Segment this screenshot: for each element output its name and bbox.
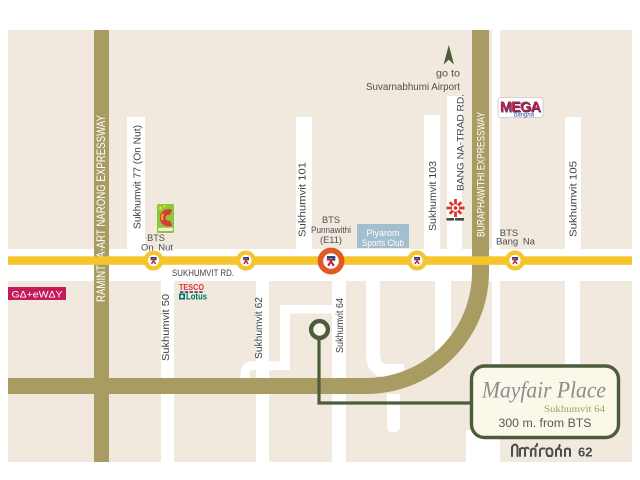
svg-text:62: 62 <box>578 445 592 460</box>
svg-text:(E11): (E11) <box>320 235 342 245</box>
svg-text:Bang Na: Bang Na <box>496 237 536 248</box>
svg-text:Sukhumvit 64: Sukhumvit 64 <box>544 404 606 414</box>
svg-text:300 m. from BTS: 300 m. from BTS <box>499 416 592 430</box>
svg-text:Piyarom: Piyarom <box>366 228 399 238</box>
svg-text:Sukhumvit 62: Sukhumvit 62 <box>254 297 265 359</box>
svg-text:Sports Club: Sports Club <box>362 238 404 248</box>
svg-text:SUKHUMVIT RD.: SUKHUMVIT RD. <box>172 268 234 279</box>
svg-text:Lotus: Lotus <box>186 291 207 301</box>
svg-text:Suvarnabhumi Airport: Suvarnabhumi Airport <box>366 81 460 93</box>
svg-text:Sukhumvit 101: Sukhumvit 101 <box>298 162 309 237</box>
svg-text:BTS: BTS <box>147 233 165 243</box>
svg-text:Sukhumvit 50: Sukhumvit 50 <box>161 294 172 361</box>
svg-text:Sukhumvit 105: Sukhumvit 105 <box>569 161 580 237</box>
svg-text:go to: go to <box>436 69 460 80</box>
svg-text:Punnawithi: Punnawithi <box>311 225 351 235</box>
svg-text:On Nut: On Nut <box>141 243 173 254</box>
svg-text:Sukhumvit 103: Sukhumvit 103 <box>428 161 439 231</box>
svg-text:bangna: bangna <box>514 113 535 119</box>
svg-text:Sukhumvit 77 (On Nut): Sukhumvit 77 (On Nut) <box>133 125 144 229</box>
svg-text:GΔ+eWΔY: GΔ+eWΔY <box>12 289 64 300</box>
svg-text:Mayfair Place: Mayfair Place <box>481 378 606 404</box>
svg-text:BTS: BTS <box>322 215 340 225</box>
svg-text:BURAPHAWITHI EXPRESSWAY: BURAPHAWITHI EXPRESSWAY <box>476 112 488 237</box>
svg-text:BANG NA-TRAD RD.: BANG NA-TRAD RD. <box>456 94 467 191</box>
svg-text:Sukhumvit 64: Sukhumvit 64 <box>335 298 346 353</box>
svg-text:RAMINTRA-ART NARONG EXPRESSWAY: RAMINTRA-ART NARONG EXPRESSWAY <box>96 115 108 302</box>
